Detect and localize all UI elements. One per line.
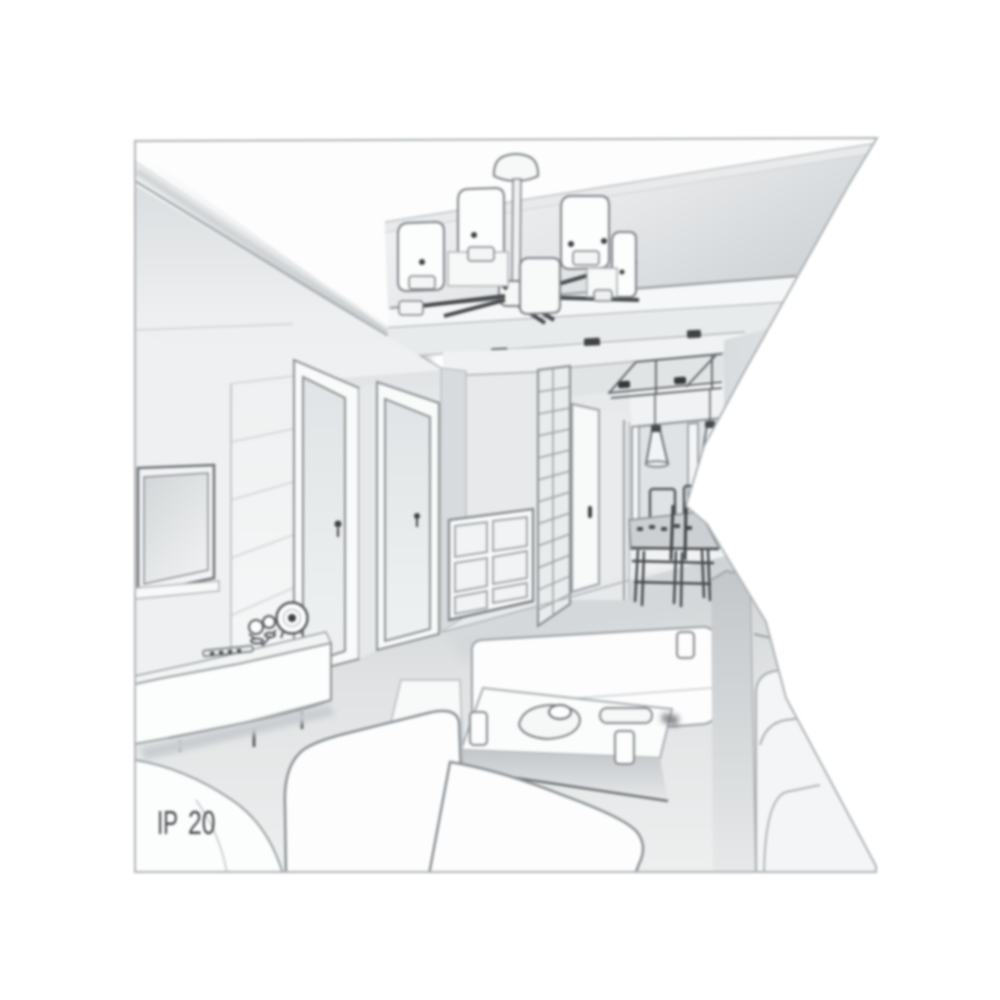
svg-text:20: 20: [188, 804, 216, 841]
svg-text:IP: IP: [157, 804, 178, 841]
